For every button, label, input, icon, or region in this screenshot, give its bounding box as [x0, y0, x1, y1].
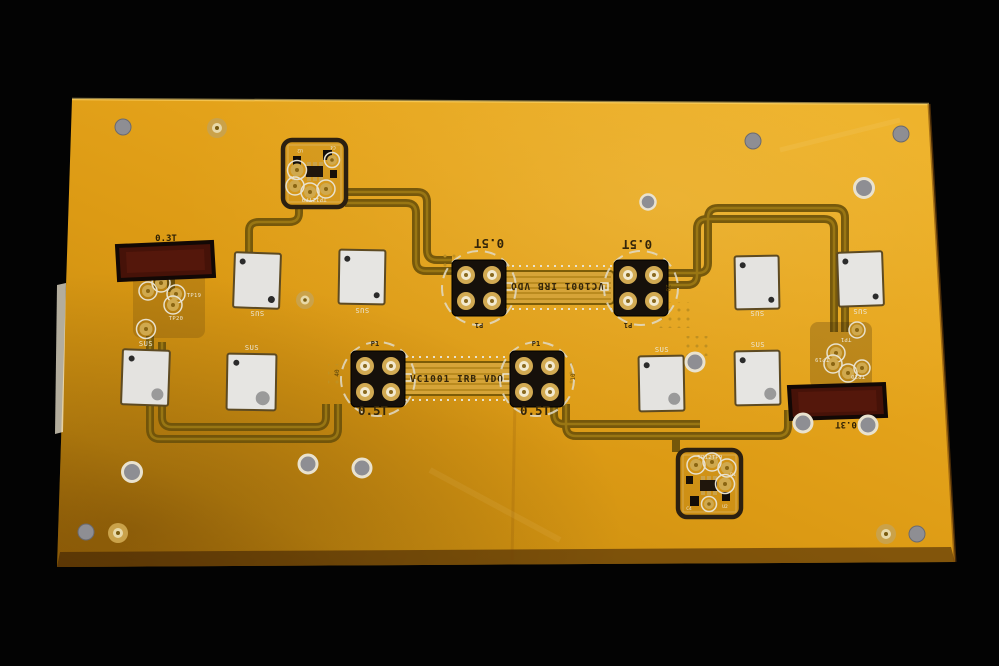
thickness-label: 0.5T — [358, 403, 388, 418]
sus-label: SUS — [750, 309, 764, 317]
connector-ref-label: P1 — [475, 321, 483, 329]
testpoint-label: TP1 — [841, 336, 852, 342]
sus-label: SUS — [853, 307, 867, 315]
thickness-label: 0.5T — [474, 236, 504, 251]
testpoint-block-label: TP12TP9 — [301, 196, 326, 202]
ref-label: C4 — [686, 506, 692, 512]
testpoint-block-label: TP12TP9 — [697, 455, 722, 461]
ref-label: R1 — [730, 472, 736, 478]
component-cluster-top-left: TP12TP9 C4 U2 R1 — [283, 140, 346, 207]
part-number-bottom: VC1001 IRB VDO — [410, 374, 504, 385]
ic-body — [700, 480, 717, 491]
pin-number-label: 10 — [570, 373, 577, 381]
thickness-label: 0.5T — [622, 237, 652, 252]
thickness-label: 0.5T — [520, 403, 550, 418]
connector-ref-label: P1 — [532, 340, 540, 348]
sus-label: SUS — [355, 306, 369, 314]
component-cluster-bottom-right: TP12TP9 R1 U2 C4 — [678, 450, 741, 517]
testpoint-area-right: TP1 TP19 TP20 — [810, 322, 872, 388]
sus-label: SUS — [245, 344, 259, 352]
ref-label: U2 — [297, 147, 303, 153]
tape-inner — [126, 249, 205, 273]
ic-body — [306, 166, 323, 177]
sus-label: SUS — [655, 346, 669, 354]
photo-flex-pcb: SUS SUS SUS SUS SUS SUS SUS SUS VC1001 I… — [0, 0, 999, 666]
ribbon-top: VC1001 IRB VDO — [498, 266, 616, 309]
ref-label: U2 — [722, 504, 728, 510]
testpoint-label: TP20 — [169, 316, 183, 322]
chip-component — [686, 476, 693, 484]
chip-component — [690, 496, 699, 506]
thickness-label-03: 0.3T — [835, 419, 857, 429]
connector-top-left — [442, 251, 516, 325]
pcb-photo-canvas: SUS SUS SUS SUS SUS SUS SUS SUS VC1001 I… — [0, 0, 999, 666]
part-number-top: VC1001 IRB VDO — [510, 280, 604, 291]
thickness-label-03: 0.3T — [155, 234, 177, 244]
pin-number-label: 40 — [334, 369, 341, 377]
sus-label: SUS — [139, 340, 153, 348]
chip-component — [330, 170, 337, 178]
testpoint-label: TP19 — [187, 293, 201, 299]
connector-ref-label: P1 — [371, 340, 379, 348]
connector-ref-label: P1 — [624, 321, 632, 329]
tape-inner — [798, 390, 877, 413]
testpoint-label: TP20 — [851, 373, 865, 379]
sus-label: SUS — [250, 309, 264, 317]
sus-label: SUS — [751, 341, 765, 349]
ref-label: C4 — [330, 144, 336, 150]
ref-label: R1 — [288, 174, 294, 180]
testpoint-label: TP19 — [815, 356, 829, 362]
pin-number-label: 20 — [664, 284, 671, 292]
